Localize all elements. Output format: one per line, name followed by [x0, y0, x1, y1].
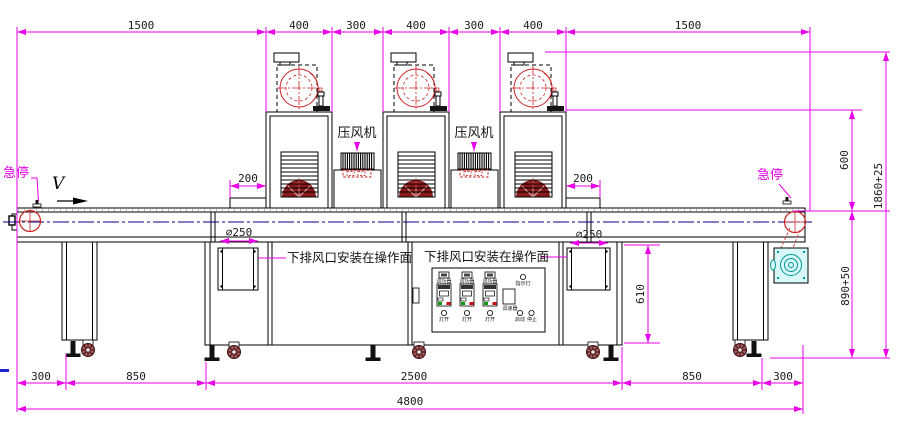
dim-entry-200-left: 200 [218, 173, 278, 185]
dim-top-1500-right: 1500 [658, 20, 718, 32]
panel-stop-label: 停止 [525, 317, 539, 323]
panel-lamp-switch-label-1: 灯开 [432, 317, 456, 323]
dim-entry-200-right: 200 [553, 173, 613, 185]
cooling-blower-3 [508, 53, 564, 112]
duct-note-left: 下排风口安装在操作面 [287, 251, 412, 265]
cooling-blower-1 [274, 53, 330, 112]
panel-indicator-label: 指示灯 [511, 281, 535, 287]
dim-top-400-3: 400 [503, 20, 563, 32]
leg-left [62, 242, 97, 340]
exhaust-duct-left [218, 248, 258, 290]
dim-bottom-850-left: 850 [106, 371, 166, 383]
panel-lamp-switch-label-3: 灯开 [478, 317, 502, 323]
dim-dia250-right: ∅250 [559, 229, 619, 241]
direction-label: V [52, 174, 64, 194]
drive-roller-left [19, 210, 41, 232]
blower-label-1: 压风机 [337, 127, 377, 141]
panel-regulator-label-3: 调功器 [478, 279, 502, 285]
dim-bottom-300-left: 300 [11, 371, 71, 383]
exhaust-duct-right [567, 248, 610, 290]
estop-button-left [33, 200, 41, 207]
dim-top-400-1: 400 [269, 20, 329, 32]
pressure-fan-box-2 [451, 153, 498, 208]
dim-right-1860: 1860+25 [873, 156, 885, 216]
dim-right-890: 890+50 [840, 256, 852, 316]
dim-top-300-1: 300 [326, 20, 386, 32]
pressure-fan-box-1 [334, 153, 381, 208]
dim-top-400-2: 400 [386, 20, 446, 32]
uv-curing-machine-drawing: 1500 400 300 400 300 400 1500 200 200 ∅2… [0, 0, 901, 426]
leg-right [733, 242, 768, 340]
estop-label-right: 急停 [757, 169, 783, 183]
estop-leader-right [779, 184, 791, 198]
drive-roller-right [784, 211, 806, 233]
machine-linework [0, 0, 901, 426]
blower-label-2: 压风机 [454, 127, 494, 141]
uv-lamp-housing-3 [500, 112, 566, 208]
estop-label-left: 急停 [3, 167, 29, 181]
panel-lamp-switch-label-2: 灯开 [455, 317, 479, 323]
dim-cabinet-610: 610 [635, 264, 647, 324]
estop-leader-left [31, 178, 39, 201]
panel-regulator-label-1: 调功器 [432, 279, 456, 285]
dim-right-600: 600 [839, 130, 851, 190]
screen-artifact-dash [0, 369, 9, 372]
dim-bottom-300-right: 300 [753, 371, 813, 383]
dim-top-300-2: 300 [444, 20, 504, 32]
estop-button-right [783, 197, 791, 204]
dim-top-1500-left: 1500 [111, 20, 171, 32]
panel-speed-label: 调速器 [500, 306, 520, 312]
dim-bottom-2500: 2500 [384, 371, 444, 383]
dim-total-4800: 4800 [380, 396, 440, 408]
dim-bottom-850-right: 850 [662, 371, 722, 383]
uv-lamp-housing-2 [383, 112, 449, 208]
duct-note-right: 下排风口安装在操作面 [424, 250, 549, 264]
panel-regulator-label-2: 调功器 [455, 279, 479, 285]
cooling-blower-2 [391, 53, 447, 112]
uv-lamp-housing-1 [266, 112, 332, 208]
door-handle [413, 288, 419, 303]
direction-arrow [57, 198, 88, 205]
dim-dia250-left: ∅250 [209, 227, 269, 239]
